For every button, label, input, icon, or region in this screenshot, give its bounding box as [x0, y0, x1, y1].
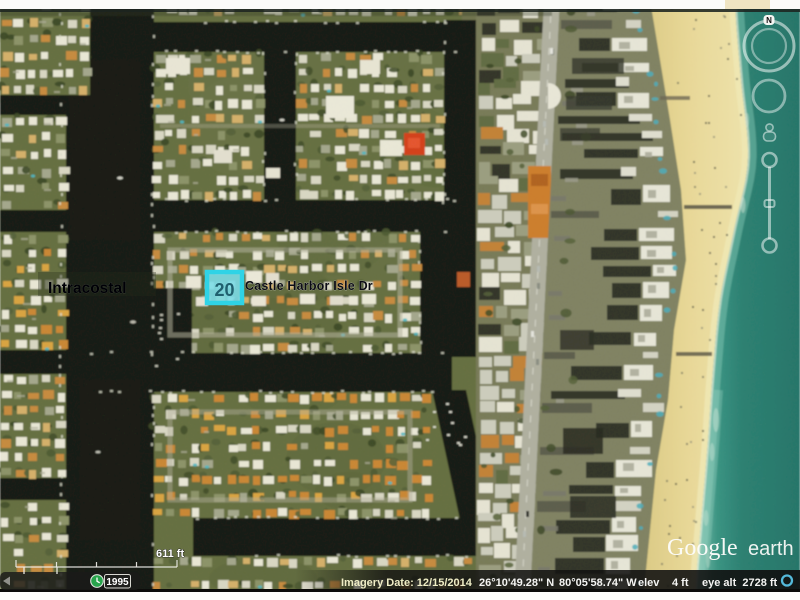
svg-text:80°05'58.74" W: 80°05'58.74" W	[559, 577, 637, 589]
svg-text:Imagery Date: 12/15/2014: Imagery Date: 12/15/2014	[341, 577, 473, 589]
svg-text:20: 20	[214, 280, 234, 300]
svg-text:26°10'49.28" N: 26°10'49.28" N	[479, 577, 554, 589]
svg-text:N: N	[766, 16, 772, 25]
svg-text:4 ft: 4 ft	[672, 577, 689, 589]
svg-text:611 ft: 611 ft	[156, 548, 184, 560]
svg-text:Castle Harbor Isle Dr: Castle Harbor Isle Dr	[245, 279, 373, 293]
svg-text:earth: earth	[748, 538, 794, 560]
svg-text:elev: elev	[638, 577, 660, 589]
svg-text:eye alt 2728 ft: eye alt 2728 ft	[702, 577, 778, 589]
svg-text:1995: 1995	[106, 577, 129, 588]
svg-text:Intracostal: Intracostal	[48, 280, 126, 297]
svg-text:Google: Google	[667, 535, 738, 561]
